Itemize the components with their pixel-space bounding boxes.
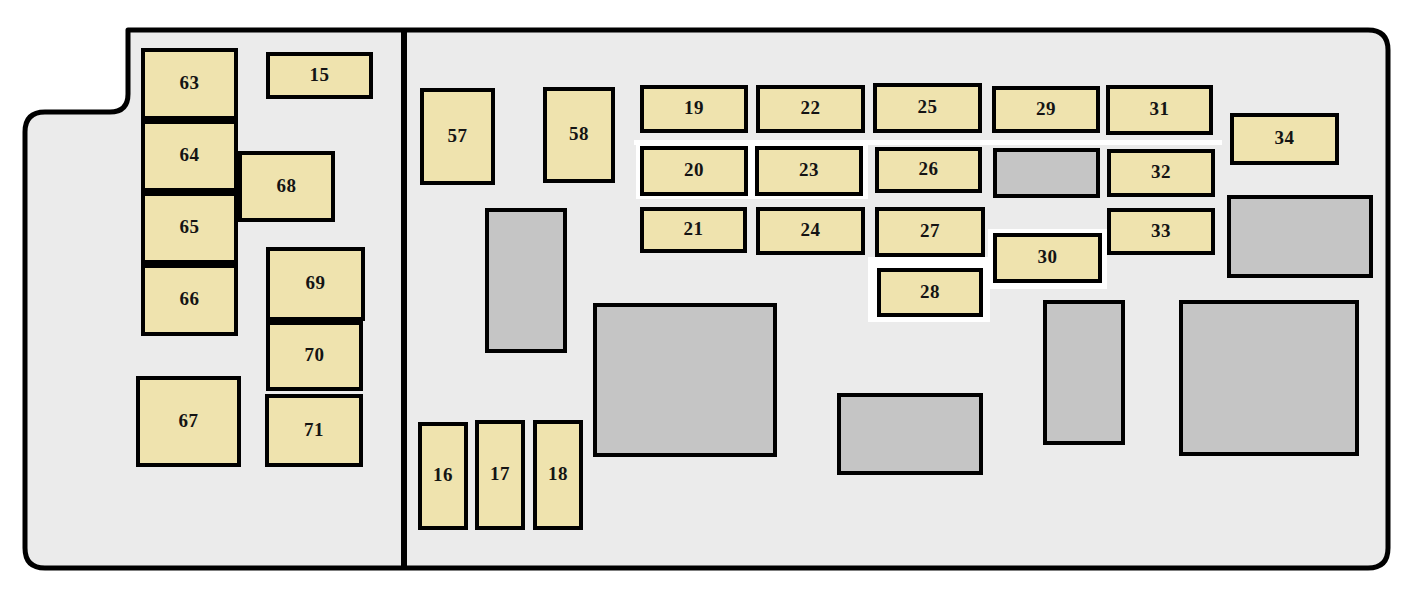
relay-box <box>993 148 1100 198</box>
fuse-label: 25 <box>918 96 938 118</box>
fuse-box-31: 31 <box>1106 85 1213 135</box>
relay-box <box>593 303 777 457</box>
fuse-label: 17 <box>490 463 510 485</box>
fuse-label: 34 <box>1275 127 1295 149</box>
fuse-box-20: 20 <box>640 146 748 196</box>
fuse-box-33: 33 <box>1107 208 1215 255</box>
fuse-label: 68 <box>277 175 297 197</box>
fuse-box-diagram: 1516171819202122232425262728293031323334… <box>0 0 1414 590</box>
fuse-label: 63 <box>180 72 200 94</box>
fuse-box-57: 57 <box>420 88 495 185</box>
fuse-label: 33 <box>1151 220 1171 242</box>
fuse-box-64: 64 <box>141 120 238 192</box>
fuse-label: 16 <box>433 464 453 486</box>
fuse-box-24: 24 <box>756 207 865 255</box>
fuse-label: 18 <box>548 463 568 485</box>
fuse-box-63: 63 <box>141 48 238 120</box>
fuse-box-22: 22 <box>756 85 865 133</box>
fuse-box-30: 30 <box>993 233 1102 283</box>
fuse-box-28: 28 <box>877 268 983 317</box>
fuse-box-25: 25 <box>873 83 982 133</box>
fuse-label: 26 <box>919 158 939 180</box>
fuse-box-32: 32 <box>1107 149 1215 197</box>
fuse-box-58: 58 <box>543 87 615 183</box>
fuse-label: 24 <box>801 219 821 241</box>
fuse-label: 15 <box>310 64 330 86</box>
relay-box <box>1179 300 1359 456</box>
relay-box <box>1043 300 1125 445</box>
fuse-box-67: 67 <box>136 376 241 467</box>
fuse-box-23: 23 <box>755 146 863 196</box>
fuse-box-26: 26 <box>875 147 982 193</box>
fuse-label: 58 <box>569 123 589 145</box>
fuse-box-16: 16 <box>418 422 468 530</box>
fuse-label: 21 <box>684 218 704 240</box>
fuse-box-70: 70 <box>266 321 363 391</box>
fuse-label: 28 <box>920 281 940 303</box>
fuse-label: 19 <box>684 97 704 119</box>
fuse-box-19: 19 <box>640 85 748 133</box>
relay-box <box>837 393 983 475</box>
fuse-box-34: 34 <box>1230 113 1339 165</box>
fuse-box-18: 18 <box>533 420 583 530</box>
fuse-label: 30 <box>1038 246 1058 268</box>
fuse-label: 64 <box>180 144 200 166</box>
fuse-box-66: 66 <box>141 264 238 336</box>
fuse-box-71: 71 <box>265 394 363 467</box>
fuse-box-21: 21 <box>640 207 747 253</box>
fuse-label: 57 <box>448 125 468 147</box>
fuse-label: 27 <box>920 220 940 242</box>
fuse-box-69: 69 <box>266 247 365 321</box>
fuse-label: 32 <box>1151 161 1171 183</box>
fuse-box-65: 65 <box>141 192 238 264</box>
fuse-box-29: 29 <box>992 86 1100 133</box>
fuse-box-17: 17 <box>475 420 525 530</box>
fuse-label: 23 <box>799 159 819 181</box>
fuse-label: 67 <box>179 410 199 432</box>
fuse-label: 69 <box>306 272 326 294</box>
fuse-label: 29 <box>1036 98 1056 120</box>
fuse-box-15: 15 <box>266 52 373 99</box>
fuse-label: 20 <box>684 159 704 181</box>
fuse-label: 22 <box>801 97 821 119</box>
fuse-label: 31 <box>1150 98 1170 120</box>
fuse-box-27: 27 <box>875 207 985 257</box>
fuse-label: 71 <box>304 419 324 441</box>
fuse-label: 66 <box>180 288 200 310</box>
fuse-label: 70 <box>305 344 325 366</box>
relay-box <box>1227 195 1373 278</box>
fuse-box-68: 68 <box>238 151 335 222</box>
relay-box <box>485 208 567 353</box>
fuse-label: 65 <box>180 216 200 238</box>
